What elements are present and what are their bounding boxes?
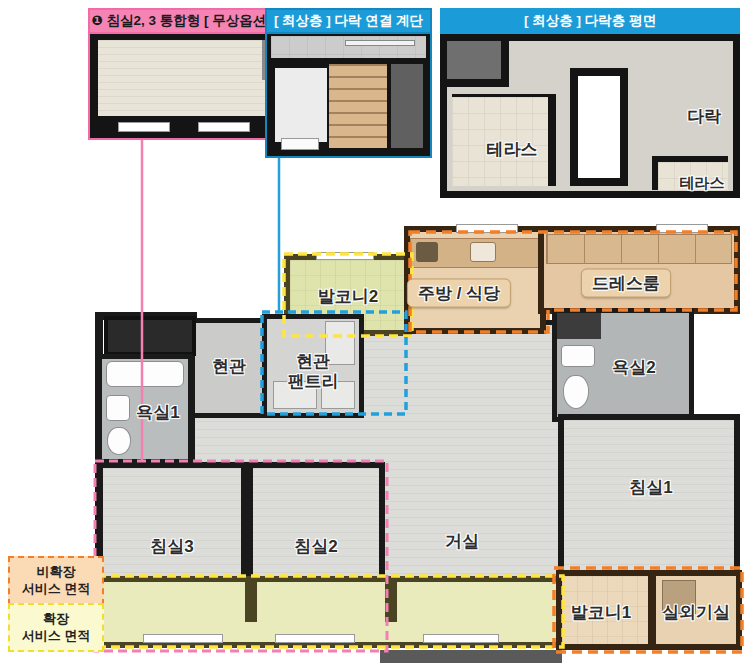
room-label-attic: 다락 (687, 105, 721, 128)
window (456, 224, 518, 233)
room-label-pantry-line1: 현관 (288, 352, 339, 372)
window (316, 252, 374, 260)
window (143, 634, 223, 643)
room-label-bed2: 침실2 (294, 535, 337, 558)
attic-plan-callout: [ 최상층 ] 다락층 평면 테라스 다락 테라스 (440, 8, 740, 198)
attic-stairwell-block (447, 41, 509, 87)
room-label-outdoor-unit: 실외기실 (662, 601, 730, 624)
window (275, 634, 355, 643)
bedroom-option-title: ❶ 침실2, 3 통합형 [ 무상옵션 ] (88, 8, 278, 34)
room-label-entrance: 현관 (212, 355, 246, 378)
room-label-bath1: 욕실1 (136, 401, 179, 424)
stair-void-block (391, 64, 423, 148)
sink-icon (470, 242, 496, 262)
window (423, 634, 499, 643)
room-label-pantry-line2: 팬트리 (288, 372, 339, 392)
room-label-bed3: 침실3 (150, 535, 193, 558)
wall-stub (385, 582, 397, 622)
window (656, 224, 708, 233)
exterior-ledge (380, 650, 562, 663)
window (198, 122, 250, 132)
room-label-attic-terrace-right: 테라스 (680, 174, 725, 193)
floorplan-canvas: ❶ 침실2, 3 통합형 [ 무상옵션 ] [ 최상층 ] 다락 연결 계단 [… (0, 0, 747, 672)
attic-stair-callout: [ 최상층 ] 다락 연결 계단 (265, 8, 432, 158)
room-label-balcony1: 발코니1 (571, 601, 631, 624)
wardrobe-row (546, 234, 732, 264)
bedroom-option-callout: ❶ 침실2, 3 통합형 [ 무상옵션 ] (88, 8, 278, 140)
sink-icon (106, 395, 130, 421)
toilet-icon (563, 375, 589, 409)
stair-door (281, 138, 319, 150)
bottom-balcony-strip (97, 576, 563, 648)
room-bed2 (247, 462, 385, 590)
legend-expanded: 확장 서비스 면적 (8, 603, 104, 652)
stair-landing (275, 68, 327, 142)
room-label-bed1: 침실1 (629, 476, 672, 499)
legend-expanded-line2: 서비스 면적 (22, 628, 91, 645)
room-label-attic-terrace-left: 테라스 (487, 138, 538, 161)
stair-upper-rail (345, 40, 415, 46)
room-label-dressroom: 드레스룸 (581, 269, 671, 298)
wall-stub (245, 582, 257, 622)
entrance-closet (104, 316, 196, 356)
room-label-living: 거실 (445, 530, 479, 553)
sink-icon (561, 345, 595, 367)
merged-bedroom-floor (98, 40, 268, 116)
room-label-kitchen: 주방 / 식당 (407, 279, 511, 308)
toilet-icon (107, 427, 131, 455)
attic-void (570, 68, 628, 186)
room-label-balcony2: 발코니2 (318, 285, 378, 308)
attic-plan-title: [ 최상층 ] 다락층 평면 (440, 8, 740, 34)
attic-stair-title: [ 최상층 ] 다락 연결 계단 (265, 8, 432, 34)
room-bed1 (558, 414, 740, 586)
washer-block (557, 313, 601, 339)
legend-expanded-line1: 확장 (43, 611, 69, 628)
legend-non-expanded-line2: 서비스 면적 (22, 581, 91, 598)
bathtub-icon (106, 361, 184, 387)
legend-non-expanded: 비확장 서비스 면적 (8, 556, 104, 605)
room-label-bath2: 욕실2 (612, 356, 655, 379)
room-bed3 (97, 462, 247, 590)
stair-steps (329, 64, 387, 148)
cooktop-icon (416, 242, 438, 262)
window (118, 122, 170, 132)
legend-non-expanded-line1: 비확장 (37, 564, 76, 581)
room-label-pantry: 현관 팬트리 (288, 352, 339, 391)
